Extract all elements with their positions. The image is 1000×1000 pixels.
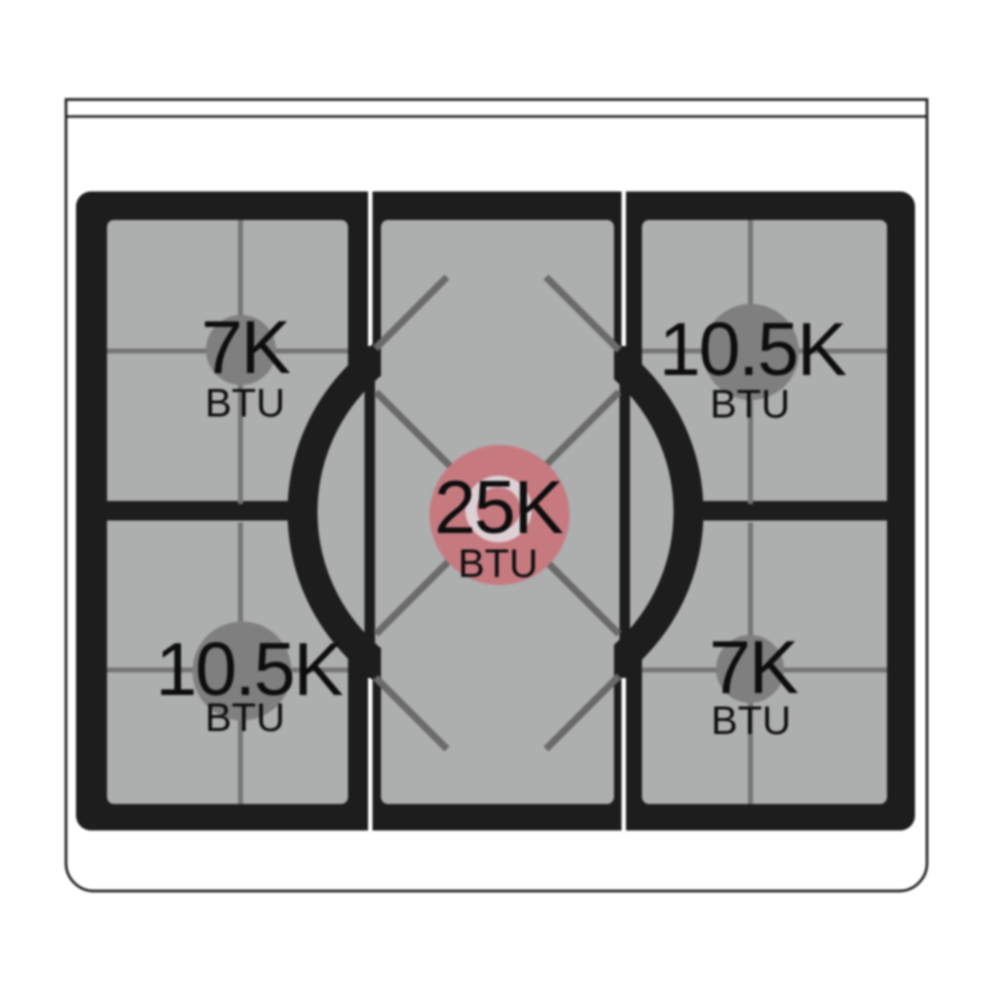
svg-text:BTU: BTU (205, 382, 285, 426)
svg-text:7K: 7K (709, 625, 799, 709)
svg-text:BTU: BTU (711, 699, 791, 743)
svg-text:10.5K: 10.5K (659, 307, 847, 391)
svg-text:7K: 7K (201, 305, 291, 389)
svg-text:BTU: BTU (458, 542, 538, 586)
svg-text:BTU: BTU (710, 383, 790, 427)
svg-text:25K: 25K (434, 465, 563, 549)
svg-text:BTU: BTU (205, 696, 285, 740)
